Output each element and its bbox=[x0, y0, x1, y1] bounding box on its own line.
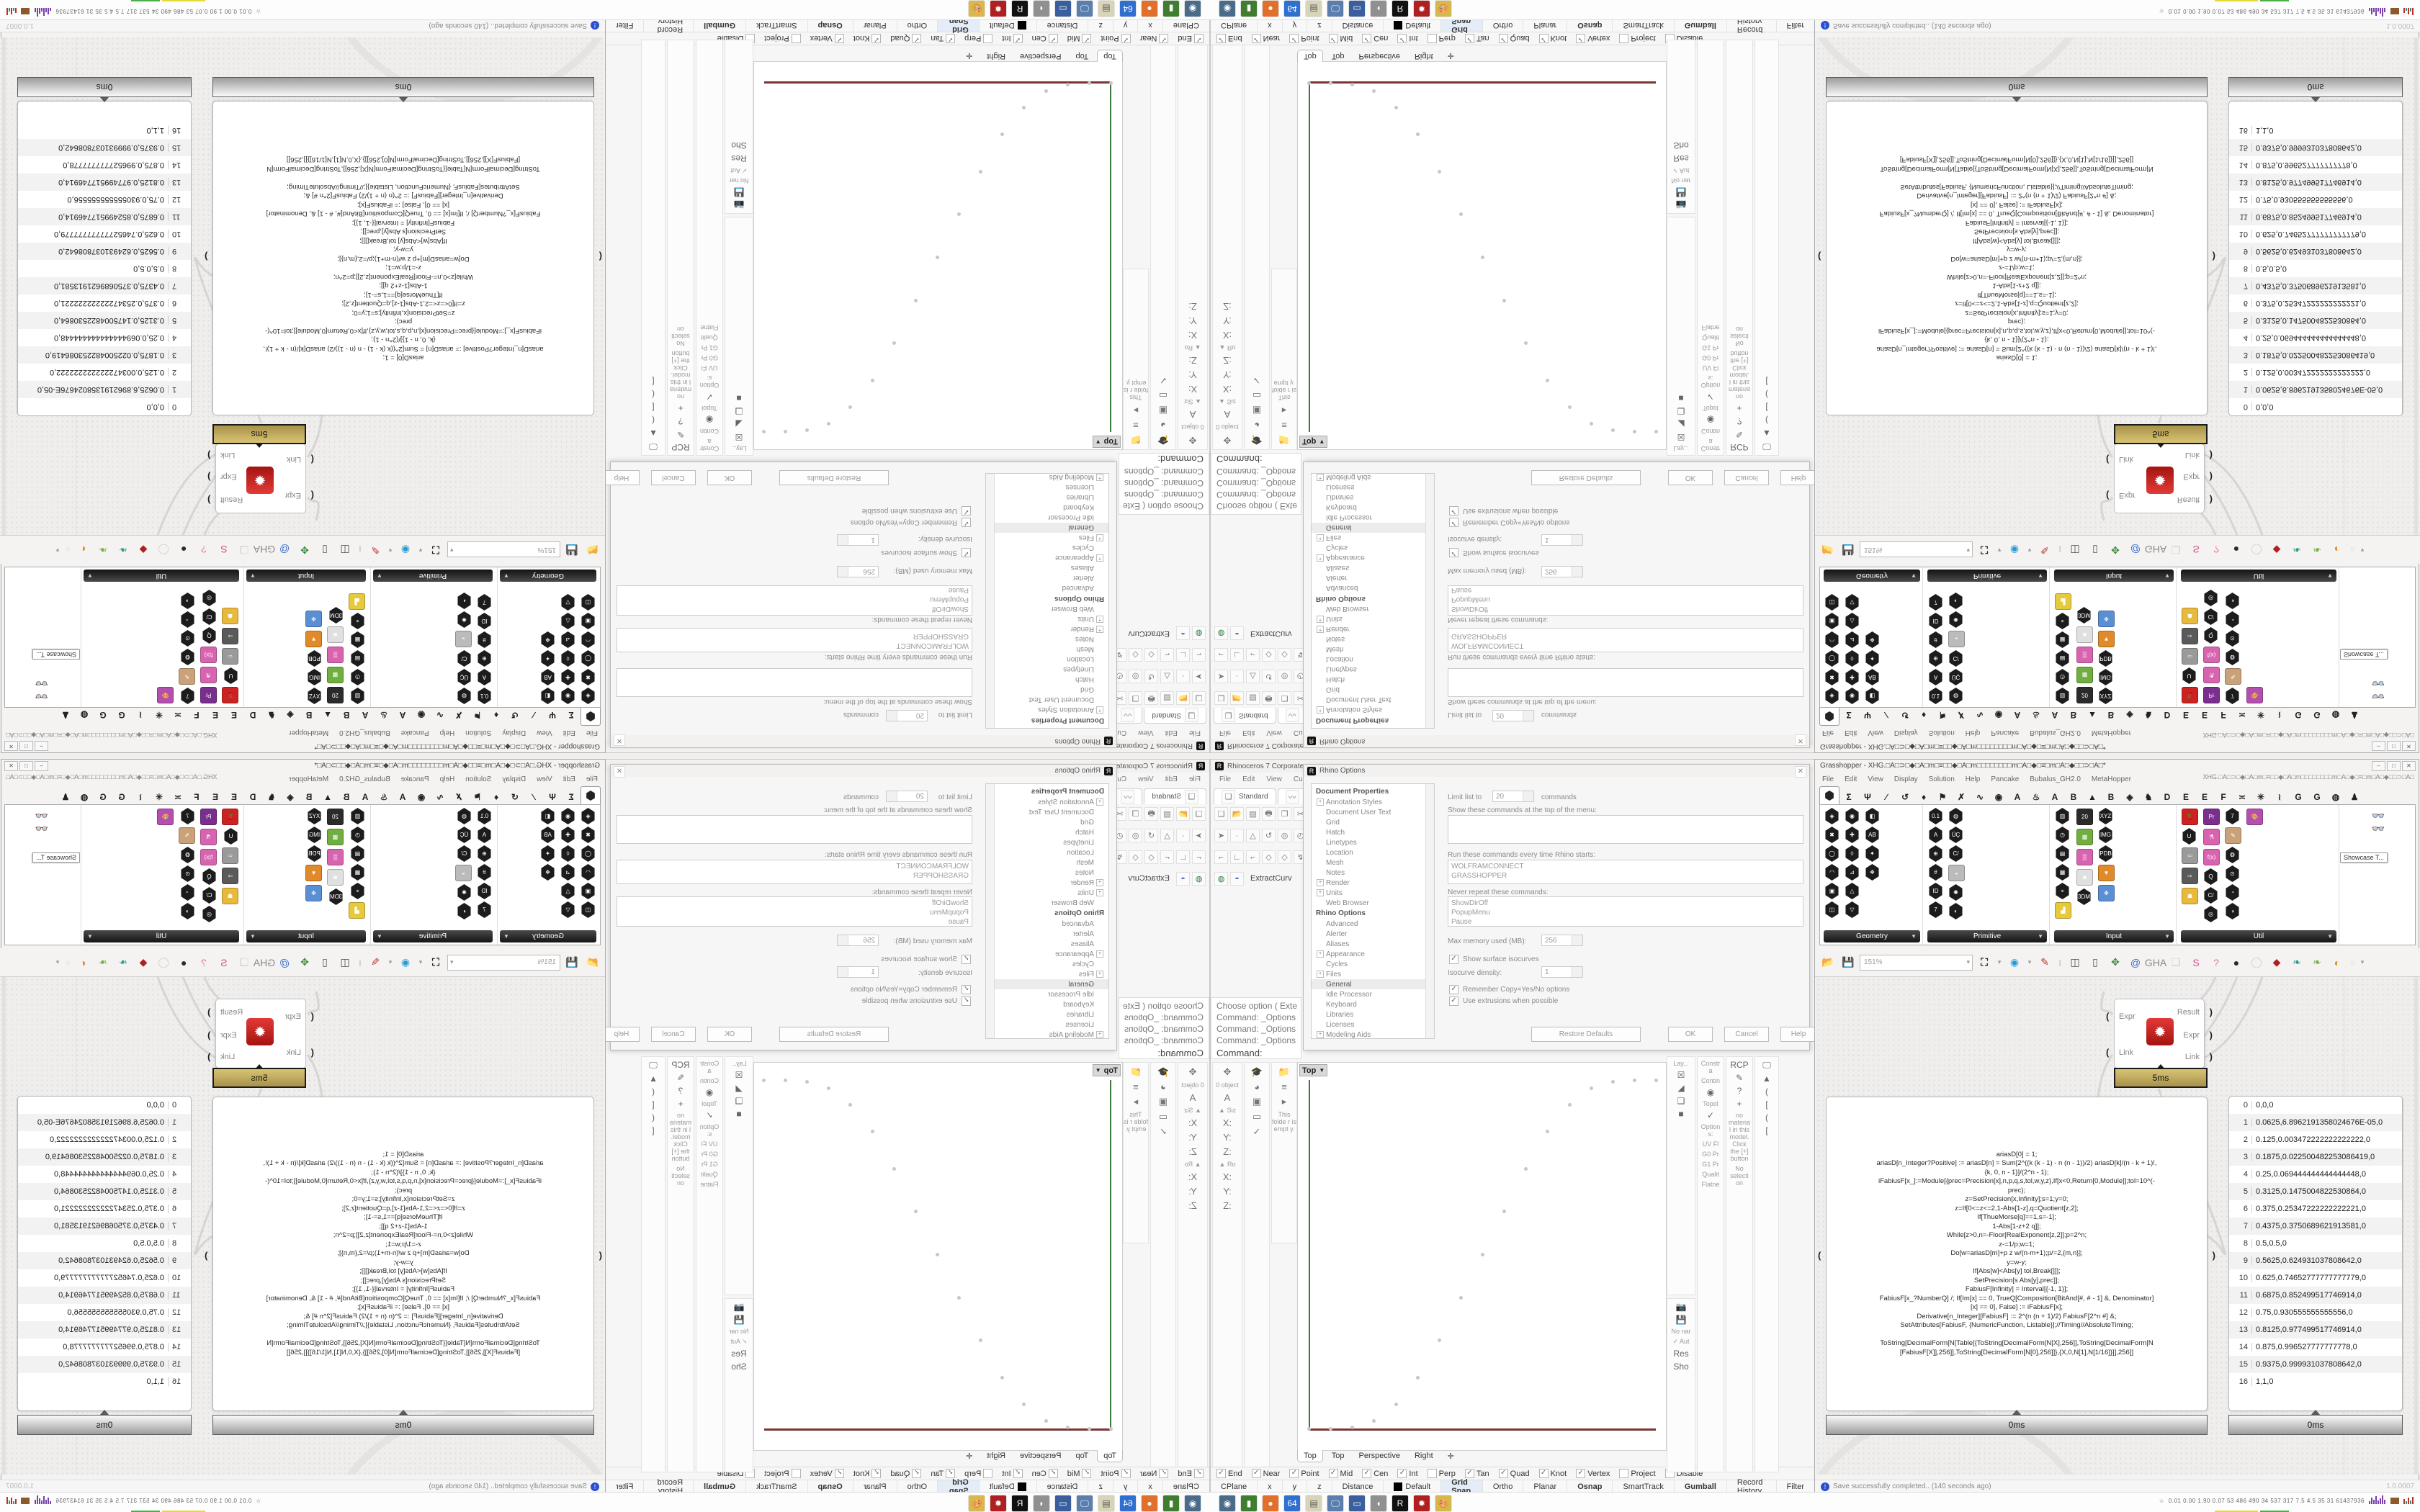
osnap-near[interactable]: ✓Near bbox=[1252, 1469, 1281, 1478]
tool-icon[interactable]: ◇ bbox=[1278, 850, 1291, 864]
tree-item-general[interactable]: General bbox=[1312, 523, 1434, 533]
component-icon[interactable]: ◍ bbox=[1948, 808, 1963, 824]
table-row[interactable]: 50.3125,0.1475004822530864,0 bbox=[18, 312, 191, 329]
expand-icon[interactable]: + bbox=[1096, 971, 1103, 978]
expand-icon[interactable]: + bbox=[1096, 554, 1103, 562]
panel-grip-icon[interactable]: ( bbox=[1818, 1250, 1821, 1261]
table-row[interactable]: 40.25,0.069444444444444448,0 bbox=[18, 1166, 191, 1183]
component-icon[interactable]: ◑ bbox=[2225, 903, 2240, 919]
palette-group-label[interactable]: Primitive▼ bbox=[1927, 570, 2047, 582]
data-panel[interactable]: ( ) 00,0,010.0625,6.8962191358024676E-05… bbox=[17, 101, 192, 416]
output-grip-icon[interactable]: ) bbox=[2210, 1007, 2213, 1017]
category-tab-8[interactable]: ∿ bbox=[431, 790, 449, 804]
panel-icon[interactable]: ≡ bbox=[1124, 1081, 1148, 1092]
ok-button[interactable]: OK bbox=[1668, 1027, 1713, 1042]
menu-item-metahopper[interactable]: MetaHopper bbox=[2092, 775, 2131, 783]
viewport-menu-icon[interactable]: ▼ bbox=[1095, 1067, 1101, 1074]
category-tab-12[interactable]: A bbox=[356, 708, 375, 722]
command-history[interactable]: Choose option ( ExteCommand: _OptionsCom… bbox=[1119, 453, 1209, 515]
glasses-icon[interactable]: 👓 bbox=[6, 690, 77, 703]
category-tab-20[interactable]: E bbox=[206, 790, 225, 804]
table-row[interactable]: 30.1875,0.022500482253086419,0 bbox=[2229, 346, 2402, 364]
panel-icon[interactable]: Y: bbox=[1178, 315, 1207, 326]
checkbox-checked-icon[interactable]: ✓ bbox=[1013, 1469, 1023, 1478]
expand-icon[interactable]: + bbox=[1096, 1031, 1103, 1038]
menu-item-edit[interactable]: Edit bbox=[563, 775, 575, 783]
tree-item-cycles[interactable]: Cycles bbox=[1312, 543, 1434, 553]
table-row[interactable]: 70.4375,0.3750689621913581,0 bbox=[18, 277, 191, 294]
component-icon[interactable]: ◒ bbox=[455, 865, 472, 881]
panel-item[interactable]: 📷 bbox=[725, 200, 753, 210]
component-icon[interactable]: 🍒 bbox=[222, 687, 238, 703]
tree-item-hatch[interactable]: Hatch bbox=[986, 675, 1108, 685]
laptop-icon[interactable]: ▭ bbox=[1348, 1495, 1366, 1512]
tree-item-grid[interactable]: Grid bbox=[986, 685, 1108, 695]
open-file-icon[interactable]: 📂 bbox=[1819, 954, 1837, 971]
panel-item[interactable]: Topol bbox=[1700, 1100, 1721, 1107]
category-tab-28[interactable]: ♟ bbox=[2345, 708, 2364, 722]
osnap-point[interactable]: ✓Point bbox=[1101, 1469, 1131, 1478]
component-icon[interactable]: ◫ bbox=[581, 901, 596, 918]
globe-icon[interactable]: ◍ bbox=[1214, 872, 1228, 886]
category-tab-13[interactable]: B bbox=[337, 790, 356, 804]
material-panel[interactable]: RCP✎?+no material in this model. Click t… bbox=[667, 40, 694, 456]
leaf-teal-icon[interactable]: ❧ bbox=[115, 954, 132, 971]
panel-item[interactable]: No nar bbox=[1670, 1328, 1692, 1335]
tree-item-modeling-aids[interactable]: +Modeling Aids bbox=[1312, 473, 1434, 482]
tool-icon[interactable]: ▤ bbox=[1246, 807, 1260, 821]
component-icon[interactable]: ❖ bbox=[540, 631, 555, 648]
panel-icon[interactable]: ▣ bbox=[1245, 405, 1269, 416]
component-icon[interactable]: ◔ bbox=[2225, 611, 2240, 628]
limit-list-spinner[interactable]: 20 bbox=[1492, 710, 1534, 721]
palette-icon[interactable]: 🎨 bbox=[968, 0, 985, 17]
component-icon[interactable]: 0.1 bbox=[1928, 688, 1943, 704]
menu-item-metahopper[interactable]: MetaHopper bbox=[289, 729, 328, 737]
component-icon[interactable]: ▩ bbox=[327, 667, 344, 683]
osnap-tan[interactable]: ✓Tan bbox=[931, 34, 955, 43]
remote-icon[interactable]: @ bbox=[2127, 541, 2144, 559]
display-panel[interactable]: 🎓◕▣▭✓ bbox=[1150, 40, 1176, 450]
table-row[interactable]: 110.6875,0.852499517746914,0 bbox=[2229, 1287, 2402, 1304]
tool-icon[interactable]: △ bbox=[1246, 829, 1260, 842]
panel-icon[interactable]: X: bbox=[1213, 1171, 1242, 1182]
component-icon[interactable]: ◷ bbox=[350, 669, 365, 685]
panel-item[interactable]: ◢ bbox=[725, 1083, 753, 1093]
dropdown-icon[interactable]: ▾ bbox=[417, 541, 424, 559]
checkbox-checked-icon[interactable]: ✓ bbox=[1397, 34, 1407, 43]
viewport-tab-top[interactable]: Top bbox=[1326, 1450, 1350, 1462]
expand-icon[interactable]: + bbox=[1096, 474, 1103, 481]
component-icon[interactable]: ◠ bbox=[1824, 631, 1839, 648]
tree-item-annotation-styles[interactable]: +Annotation Styles bbox=[986, 705, 1108, 715]
component-icon[interactable]: 7 bbox=[477, 594, 492, 611]
mathematica-code[interactable]: ariasD[0] = 1;ariasD[n_Integer?Positive]… bbox=[213, 1097, 593, 1410]
tree-item-location[interactable]: Location bbox=[1312, 654, 1434, 665]
component-icon[interactable]: ▩ bbox=[2076, 829, 2093, 845]
osnap-end[interactable]: ✓End bbox=[1178, 34, 1204, 43]
component-icon[interactable]: 7 bbox=[1928, 901, 1943, 918]
constraints-panel[interactable]: ConstraContin◉Topol✓Options:UV FlG0 PrG1… bbox=[1697, 1056, 1724, 1472]
panel-item[interactable]: ☒ bbox=[725, 1070, 753, 1080]
grasshopper-canvas[interactable]: ( ( ) ) ) Expr Link Result Expr Link ✹ 5… bbox=[1, 977, 604, 1475]
panel-icon[interactable]: 📁 bbox=[1272, 434, 1296, 446]
component-icon[interactable]: ⊕ bbox=[477, 845, 492, 862]
tool-icon[interactable]: ▤ bbox=[1160, 807, 1174, 821]
category-tab-28[interactable]: ♟ bbox=[56, 708, 75, 722]
component-icon[interactable]: ✖ bbox=[581, 669, 596, 685]
table-row[interactable]: 20.125,0.003472222222222222,0 bbox=[18, 1131, 191, 1148]
expand-icon[interactable]: + bbox=[1317, 616, 1324, 623]
status-ortho[interactable]: Ortho bbox=[897, 19, 938, 32]
panel-item[interactable]: Topol bbox=[1700, 405, 1721, 412]
display-props-panel[interactable]: 🖵▲([([ bbox=[641, 40, 665, 456]
osnap-near[interactable]: ✓Near bbox=[1140, 1469, 1169, 1478]
component-icon[interactable]: ◠ bbox=[1824, 864, 1839, 881]
minimize-button[interactable]: – bbox=[35, 761, 48, 771]
component-icon[interactable]: C/ bbox=[202, 887, 217, 904]
tree-item-alerter[interactable]: Alerter bbox=[986, 929, 1108, 939]
panel-item[interactable]: 💾 bbox=[1667, 187, 1695, 197]
tab-standard[interactable]: ❏ Standard bbox=[1214, 788, 1276, 804]
tree-item-units[interactable]: +Units bbox=[1312, 888, 1434, 898]
tree-scrollbar[interactable] bbox=[1425, 474, 1434, 728]
component-icon[interactable]: 0.1 bbox=[477, 808, 492, 824]
tree-item-keyboard[interactable]: Keyboard bbox=[986, 999, 1108, 1009]
tool-icon[interactable]: △ bbox=[1160, 670, 1174, 683]
category-tab-4[interactable]: ↺ bbox=[1896, 708, 1914, 722]
osnap-perp[interactable]: Perp bbox=[964, 34, 992, 43]
screenshot-tool-icon[interactable]: ◉ bbox=[1184, 0, 1201, 17]
table-row[interactable]: 40.25,0.069444444444444448,0 bbox=[18, 329, 191, 346]
viewport-tab-right[interactable]: Right bbox=[981, 50, 1011, 62]
tree-item-cycles[interactable]: Cycles bbox=[986, 543, 1108, 553]
component-icon[interactable]: ◫ bbox=[1824, 594, 1839, 611]
component-icon[interactable]: IMG bbox=[2098, 669, 2113, 685]
firefox-icon[interactable]: ● bbox=[1141, 0, 1158, 17]
category-tab-28[interactable]: ♟ bbox=[2345, 790, 2364, 804]
tree-item-grid[interactable]: Grid bbox=[986, 817, 1108, 827]
component-icon[interactable]: ◫ bbox=[581, 594, 596, 611]
panel-item[interactable]: UV Fl bbox=[1700, 364, 1721, 372]
panel-item[interactable]: ❏ bbox=[1667, 1096, 1695, 1106]
port-result-out[interactable]: Result bbox=[2177, 1008, 2200, 1017]
component-icon[interactable]: ◈ bbox=[581, 688, 596, 704]
panel-grip-icon[interactable]: ( bbox=[599, 251, 602, 262]
component-icon[interactable]: 7 bbox=[1928, 594, 1943, 611]
palette-group-label[interactable]: Geometry▼ bbox=[1824, 570, 1920, 582]
table-row[interactable]: 140.875,0.996527777777778,0 bbox=[18, 1338, 191, 1356]
tree-scrollbar[interactable] bbox=[986, 784, 995, 1038]
panel-item[interactable]: ✓ bbox=[1698, 1110, 1724, 1120]
category-tab-12[interactable]: A bbox=[2045, 708, 2064, 722]
component-icon[interactable]: ⚗ bbox=[200, 829, 217, 845]
viewport-tab-right[interactable]: Right bbox=[1409, 1450, 1439, 1462]
panel-item[interactable]: ☒ bbox=[1667, 1070, 1695, 1080]
palette-icon[interactable]: 🎨 bbox=[1435, 0, 1452, 17]
port-result-out[interactable]: Result bbox=[220, 1008, 243, 1017]
panel-item[interactable]: Flatne bbox=[699, 324, 720, 331]
table-row[interactable]: 00,0,0 bbox=[2229, 1097, 2402, 1114]
component-icon[interactable]: ◉ bbox=[560, 808, 575, 824]
checkbox-checked-icon[interactable]: ✓ bbox=[1049, 1469, 1058, 1478]
run-commands-textbox[interactable]: WOLFRAMCONNECT GRASSHOPPER bbox=[1448, 628, 1803, 652]
panel-icon[interactable]: Y: bbox=[1213, 1132, 1242, 1143]
tree-item-notes[interactable]: Notes bbox=[1312, 634, 1434, 644]
tool-icon[interactable]: △ bbox=[1246, 670, 1260, 683]
table-row[interactable]: 140.875,0.996527777777778,0 bbox=[2229, 1338, 2402, 1356]
panel-icon[interactable]: 📁 bbox=[1124, 434, 1148, 446]
menu-item-file[interactable]: File bbox=[586, 729, 598, 737]
panel-icon[interactable]: ✥ bbox=[1213, 1066, 1242, 1078]
tree-item-web-browser[interactable]: Web Browser bbox=[986, 898, 1108, 908]
tree-item-grid[interactable]: Grid bbox=[1312, 817, 1434, 827]
component-icon[interactable]: ▒ bbox=[2076, 647, 2093, 663]
component-icon[interactable]: ⌖ bbox=[2055, 883, 2070, 899]
osnap-perp[interactable]: Perp bbox=[964, 1469, 992, 1478]
component-icon[interactable]: ◧ bbox=[1865, 808, 1880, 824]
osnap-perp[interactable]: Perp bbox=[1428, 34, 1456, 43]
status-record-history[interactable]: Record History bbox=[1727, 19, 1777, 32]
dialog-close-icon[interactable]: ✕ bbox=[614, 766, 625, 778]
panel-icon[interactable]: X: bbox=[1178, 384, 1207, 395]
pc-user-icon[interactable]: 🖵 bbox=[1327, 0, 1344, 17]
camera-icon[interactable]: ◫ bbox=[2066, 954, 2084, 971]
category-tab-21[interactable]: F bbox=[2214, 708, 2233, 722]
dropdown-icon[interactable]: ▾ bbox=[387, 541, 394, 559]
panel-item[interactable]: [ bbox=[1755, 1125, 1778, 1135]
palette-group-label[interactable]: Geometry▼ bbox=[500, 570, 596, 582]
category-tab-19[interactable]: E bbox=[2177, 708, 2195, 722]
component-icon[interactable]: ✚ bbox=[560, 669, 575, 685]
component-icon[interactable]: ✎ bbox=[179, 827, 195, 844]
menu-item-file[interactable]: File bbox=[586, 775, 598, 783]
checkbox-checked-icon[interactable]: ✓ bbox=[946, 34, 955, 43]
panel-item[interactable]: ▲ bbox=[642, 428, 665, 438]
cylinder-icon[interactable]: ◓ bbox=[1230, 872, 1244, 886]
tree-item-location[interactable]: Location bbox=[986, 654, 1108, 665]
remote-icon[interactable]: @ bbox=[276, 954, 293, 971]
panel-icon[interactable]: ◕ bbox=[1245, 1081, 1269, 1092]
panel-icon[interactable]: Y: bbox=[1213, 1186, 1242, 1197]
component-icon[interactable]: ◧ bbox=[540, 688, 555, 704]
status-gumball[interactable]: Gumball bbox=[693, 19, 745, 32]
component-icon[interactable]: ▦ bbox=[350, 631, 365, 648]
category-tab-14[interactable]: ▲ bbox=[318, 790, 337, 804]
dropdown-icon[interactable]: ▾ bbox=[2026, 541, 2033, 559]
tool-icon[interactable]: ⌐ bbox=[1160, 850, 1174, 864]
code-panel[interactable]: ( ) ariasD[0] = 1;ariasD[n_Integer?Posit… bbox=[1826, 1097, 2208, 1411]
panel-item[interactable]: + bbox=[668, 1099, 694, 1109]
doc-flag-icon[interactable]: ❑ bbox=[236, 541, 253, 559]
checkbox-checked-icon[interactable]: ✓ bbox=[1121, 34, 1131, 43]
tree-item-advanced[interactable]: Advanced bbox=[1312, 919, 1434, 929]
tree-item-advanced[interactable]: Advanced bbox=[1312, 583, 1434, 593]
component-icon[interactable]: ⊕ bbox=[477, 650, 492, 667]
category-tab-4[interactable]: ↺ bbox=[1896, 790, 1914, 804]
checkbox-checked-icon[interactable]: ✓ bbox=[871, 34, 881, 43]
component-icon[interactable]: ◎ bbox=[2203, 590, 2218, 606]
table-row[interactable]: 50.3125,0.1475004822530864,0 bbox=[2229, 1183, 2402, 1200]
viewport-title-chip[interactable]: Top ▼ bbox=[1093, 436, 1121, 448]
checkbox-unchecked-icon[interactable] bbox=[1619, 1469, 1628, 1478]
panel-item[interactable]: ◢ bbox=[725, 419, 753, 429]
isocurves-checkbox[interactable]: ✓ Show surface isocurves bbox=[881, 548, 971, 557]
tool-icon[interactable]: ⌐ bbox=[1192, 850, 1206, 864]
constraints-panel[interactable]: ConstraContin◉Topol✓Options:UV FlG0 PrG1… bbox=[696, 40, 723, 456]
menu-item-solution[interactable]: Solution bbox=[1929, 775, 1955, 783]
table-row[interactable]: 150.9375,0.999931037808642,0 bbox=[18, 1356, 191, 1373]
component-icon[interactable]: ◔ bbox=[180, 611, 195, 628]
component-icon[interactable]: ⊿ bbox=[1845, 631, 1860, 648]
grasshopper-title-bar[interactable]: Grasshopper - XHG.□A□⊃□◆□A□m□≡□□◆□A□m□□□… bbox=[1, 760, 605, 772]
panel-item[interactable]: ( bbox=[1755, 390, 1778, 400]
leaf-teal-icon[interactable]: ❧ bbox=[115, 541, 132, 559]
mathematica-code[interactable]: ariasD[0] = 1;ariasD[n_Integer?Positive]… bbox=[1827, 102, 2207, 415]
component-icon[interactable]: # bbox=[1928, 864, 1943, 881]
component-icon[interactable]: ▼ bbox=[305, 631, 322, 647]
category-tab-5[interactable]: ♦ bbox=[1914, 790, 1933, 804]
component-icon[interactable]: 3DM bbox=[328, 607, 344, 624]
tree-item-idle-processor[interactable]: Idle Processor bbox=[986, 513, 1108, 523]
category-tab-2[interactable]: Ψ bbox=[1858, 790, 1877, 804]
osnap-point[interactable]: ✓Point bbox=[1101, 34, 1131, 43]
sketch-icon[interactable]: ✎ bbox=[2036, 541, 2053, 559]
grasshopper-title-bar[interactable]: Grasshopper - XHG.□A□⊃□◆□A□m□≡□□◆□A□m□□□… bbox=[1815, 740, 2419, 752]
panel-icon[interactable]: Y: bbox=[1178, 1186, 1207, 1197]
package-icon[interactable]: ? bbox=[2208, 954, 2225, 971]
selection-lasso-icon[interactable]: ◌ bbox=[2349, 954, 2356, 971]
category-tab-25[interactable]: G bbox=[2289, 790, 2308, 804]
category-tab-6[interactable]: ⚑ bbox=[1933, 708, 1952, 722]
osnap-end[interactable]: ✓End bbox=[1178, 1469, 1204, 1478]
top-menu-textbox[interactable] bbox=[617, 815, 972, 844]
tree-item-linetypes[interactable]: Linetypes bbox=[986, 665, 1108, 675]
category-tab-4[interactable]: ↺ bbox=[506, 708, 524, 722]
viewport-menu-icon[interactable]: ▼ bbox=[1319, 438, 1325, 445]
top-menu-textbox[interactable] bbox=[1448, 815, 1803, 844]
panel-icon[interactable]: ✓ bbox=[1151, 1126, 1175, 1138]
category-tab-11[interactable]: ♨ bbox=[2027, 790, 2045, 804]
panel-item[interactable]: + bbox=[1726, 403, 1752, 413]
component-icon[interactable]: ◐ bbox=[1948, 903, 1963, 919]
tool-icon[interactable]: ⌐ bbox=[1246, 850, 1260, 864]
output-grip-icon[interactable]: ) bbox=[207, 495, 210, 505]
category-tab-2[interactable]: Ψ bbox=[543, 708, 562, 722]
osnap-cen[interactable]: ✓Cen bbox=[1362, 1469, 1388, 1478]
ok-button[interactable]: OK bbox=[1668, 470, 1713, 485]
max-memory-spinner[interactable]: 256 bbox=[1541, 935, 1583, 946]
checkbox-checked-icon[interactable]: ✓ bbox=[1465, 1469, 1474, 1478]
viewport-tab-top[interactable]: Top bbox=[1297, 1450, 1323, 1462]
dropdown-icon[interactable]: ▾ bbox=[417, 954, 424, 971]
status-distance[interactable]: Distance bbox=[1332, 19, 1384, 32]
panel-icon[interactable]: A bbox=[1178, 409, 1207, 420]
table-row[interactable]: 130.8125,0.977499517746914,0 bbox=[2229, 1321, 2402, 1338]
viewport-tab-top[interactable]: Top bbox=[1097, 50, 1123, 62]
panel-item[interactable]: UV Fl bbox=[699, 1140, 720, 1148]
gha-icon[interactable]: GHA bbox=[2147, 954, 2164, 971]
zoom-extents-icon[interactable]: ⛶ bbox=[427, 541, 444, 559]
panel-item[interactable]: Qualit bbox=[699, 334, 720, 341]
tree-item-files[interactable]: +Files bbox=[986, 533, 1108, 543]
panel-item[interactable]: ❏ bbox=[1667, 406, 1695, 416]
component-icon[interactable]: ❂ bbox=[2225, 847, 2240, 863]
top-menu-textbox[interactable] bbox=[1448, 668, 1803, 697]
status-y[interactable]: y bbox=[1113, 19, 1138, 32]
cylinder-icon[interactable]: ◓ bbox=[1176, 626, 1190, 640]
input-grip-icon[interactable]: ( bbox=[311, 490, 314, 501]
component-icon[interactable]: XYZ bbox=[307, 688, 322, 704]
category-tab-6[interactable]: ⚑ bbox=[1933, 790, 1952, 804]
open-file-icon[interactable]: 📂 bbox=[583, 541, 601, 559]
component-icon[interactable]: ▽ bbox=[1845, 901, 1860, 918]
checkbox-checked-icon[interactable]: ✓ bbox=[1252, 1469, 1261, 1478]
menu-item-pancake[interactable]: Pancake bbox=[401, 775, 429, 783]
table-row[interactable]: 80.5,0.5,0 bbox=[2229, 1235, 2402, 1252]
tree-item-modeling-aids[interactable]: +Modeling Aids bbox=[1312, 1030, 1434, 1039]
screenshot-tool-icon[interactable]: ◉ bbox=[1219, 1495, 1236, 1512]
tree-item-advanced[interactable]: Advanced bbox=[986, 583, 1108, 593]
viewport-menu-icon[interactable]: ▼ bbox=[1319, 1067, 1325, 1074]
tree-item-render[interactable]: +Render bbox=[986, 878, 1108, 888]
panel-item[interactable]: ❏ bbox=[725, 406, 753, 416]
panel-item[interactable]: No selection bbox=[670, 325, 691, 347]
component-icon[interactable]: XYZ bbox=[2098, 688, 2113, 704]
component-icon[interactable]: ⊙ bbox=[2225, 630, 2240, 647]
component-icon[interactable]: C/ bbox=[1948, 650, 1963, 667]
osnap-knot[interactable]: ✓Knot bbox=[853, 1469, 882, 1478]
port-expr-out[interactable]: Expr bbox=[220, 472, 237, 481]
table-row[interactable]: 60.375,0.25347222222222221,0 bbox=[2229, 1200, 2402, 1218]
checkbox-checked-icon[interactable]: ✓ bbox=[835, 34, 844, 43]
checkbox-checked-icon[interactable]: ✓ bbox=[912, 34, 921, 43]
tree-item-document-user-text[interactable]: Document User Text bbox=[986, 695, 1108, 705]
component-icon[interactable]: ◫ bbox=[1824, 901, 1839, 918]
component-icon[interactable]: U bbox=[223, 828, 238, 845]
panel-icon[interactable]: 📁 bbox=[1272, 1066, 1296, 1078]
port-expr-in[interactable]: Expr bbox=[2119, 491, 2136, 500]
panel-icon[interactable]: Z: bbox=[1178, 1146, 1207, 1157]
component-icon[interactable]: ✺ bbox=[1948, 884, 1963, 901]
tree-item-notes[interactable]: Notes bbox=[986, 868, 1108, 878]
panel-item[interactable]: 🖵 bbox=[642, 441, 665, 452]
panel-item[interactable]: 📷 bbox=[725, 1302, 753, 1312]
category-tab-27[interactable]: ◍ bbox=[2326, 790, 2345, 804]
port-expr-out[interactable]: Expr bbox=[2183, 472, 2200, 481]
palette-group-label[interactable]: Input▼ bbox=[2054, 930, 2174, 942]
mathematica-icon[interactable]: ✹ bbox=[990, 0, 1007, 17]
divider[interactable]: | bbox=[357, 954, 364, 971]
dropdown-icon[interactable]: ▾ bbox=[387, 954, 394, 971]
status-cplane[interactable]: CPlane bbox=[1211, 19, 1258, 32]
panel-item[interactable]: Sho bbox=[725, 1362, 753, 1372]
viewport-tab-right[interactable]: Right bbox=[981, 1450, 1011, 1462]
properties-panel[interactable]: ✥0 objectA▲ SizX:Y:Z:▲ RoX:Y:Z: bbox=[1212, 1062, 1242, 1472]
mathematica-code[interactable]: ariasD[0] = 1;ariasD[n_Integer?Positive]… bbox=[213, 102, 593, 415]
tree-item-idle-processor[interactable]: Idle Processor bbox=[1312, 989, 1434, 999]
expand-icon[interactable]: + bbox=[1317, 889, 1324, 896]
component-icon[interactable]: ◒ bbox=[455, 631, 472, 647]
extrusions-checkbox[interactable]: ✓ Use extrusions when possible bbox=[1449, 506, 1558, 516]
tab-hatch[interactable]: 〰 bbox=[1113, 788, 1142, 804]
tree-item-mesh[interactable]: Mesh bbox=[986, 644, 1108, 654]
component-icon[interactable]: 7 bbox=[477, 901, 492, 918]
tool-icon[interactable]: 🖶 bbox=[1262, 807, 1276, 821]
input-grip-icon[interactable]: ( bbox=[311, 1011, 314, 1022]
category-tab-8[interactable]: ∿ bbox=[1971, 790, 1989, 804]
tree-item-idle-processor[interactable]: Idle Processor bbox=[1312, 513, 1434, 523]
